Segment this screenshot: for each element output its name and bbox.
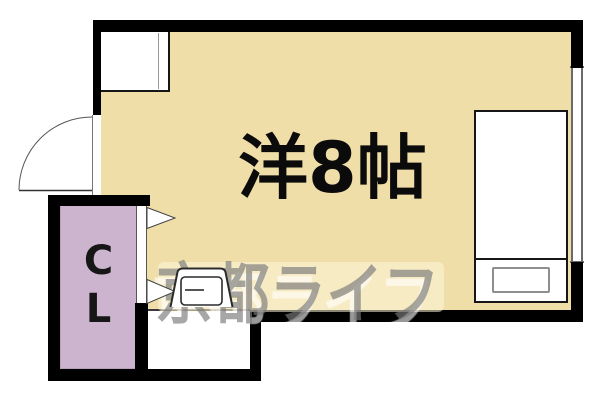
line-art-overlay — [0, 0, 600, 400]
door-swing-arc-icon — [19, 117, 92, 190]
folding-door-triangle-bottom-icon — [147, 280, 175, 304]
folding-door-triangle-top-icon — [147, 208, 175, 229]
floor-plan: 洋8帖 C L 京都ライフ — [0, 0, 600, 400]
